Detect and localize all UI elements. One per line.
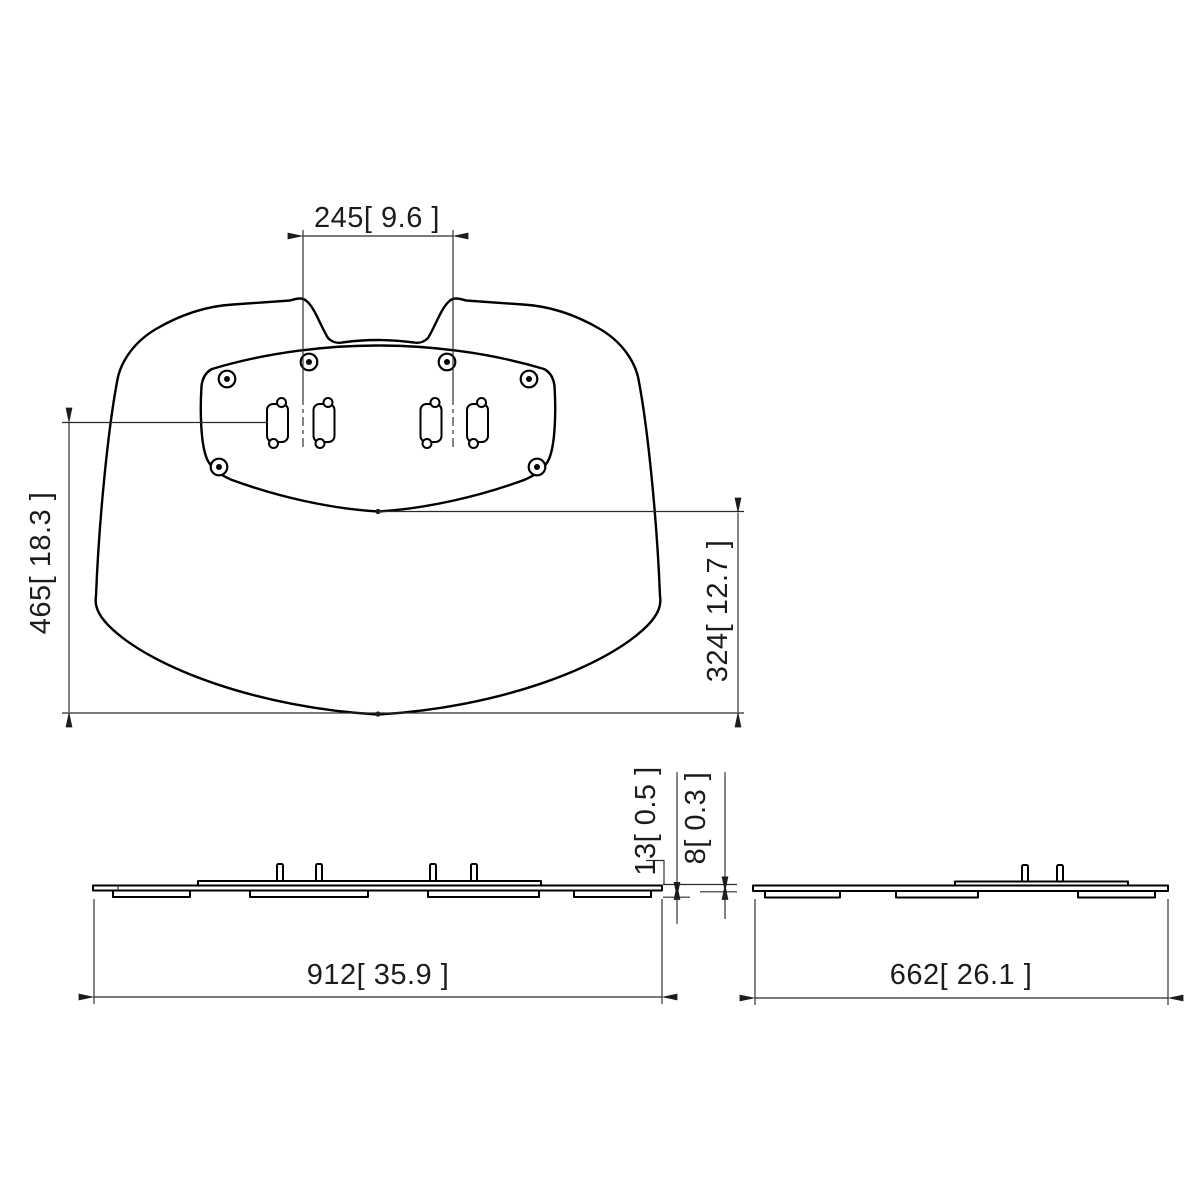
dim-912-label: 912[ 35.9 ] [307, 959, 450, 991]
screw-hole [521, 371, 538, 388]
dim-465-label: 465[ 18.3 ] [25, 492, 57, 635]
dimension-side-depth: 662[ 26.1 ] [755, 899, 1168, 1005]
dimension-height: 13[ 0.5 ] [630, 766, 677, 924]
center-point-marker [375, 711, 380, 716]
dim-662-label: 662[ 26.1 ] [890, 959, 1033, 991]
alignment-pins [1022, 865, 1063, 882]
dimension-rear-depth: 324[ 12.7 ] [702, 513, 738, 712]
base-plate-drawing: 245[ 9.6 ] 465[ 18.3 ] 324[ 12.7 ] [0, 0, 1200, 1200]
alignment-pin [1057, 865, 1063, 882]
mount-slot [267, 398, 288, 448]
alignment-pin [430, 864, 436, 881]
screw-hole [529, 459, 546, 476]
screw-holes [211, 354, 546, 476]
mount-slot [314, 398, 335, 448]
alignment-pins [277, 864, 477, 881]
dim-324-label: 324[ 12.7 ] [702, 540, 734, 683]
technical-drawing-canvas: 245[ 9.6 ] 465[ 18.3 ] 324[ 12.7 ] [0, 0, 1200, 1200]
adapter-plate-outline [201, 346, 555, 512]
alignment-pin [277, 864, 283, 881]
base-plate-outline [96, 299, 661, 715]
dim-13-label: 13[ 0.5 ] [630, 766, 662, 875]
dimension-slot-spacing: 245[ 9.6 ] [303, 202, 453, 236]
base-plate-profile [93, 886, 662, 891]
dim-245-label: 245[ 9.6 ] [314, 202, 440, 234]
screw-hole [211, 459, 228, 476]
dimension-total-depth: 465[ 18.3 ] [25, 423, 69, 712]
front-view [93, 864, 662, 897]
mount-slot [421, 398, 442, 448]
base-plate-profile [753, 886, 1168, 892]
mount-slots [267, 398, 488, 448]
dimension-total-width: 912[ 35.9 ] [94, 899, 662, 1004]
alignment-pin [1022, 865, 1028, 882]
dim-8-label: 8[ 0.3 ] [680, 772, 712, 865]
top-view [96, 230, 661, 717]
mount-slot [467, 398, 488, 448]
alignment-pin [471, 864, 477, 881]
side-view [753, 865, 1168, 898]
screw-hole [219, 371, 236, 388]
alignment-pin [316, 864, 322, 881]
